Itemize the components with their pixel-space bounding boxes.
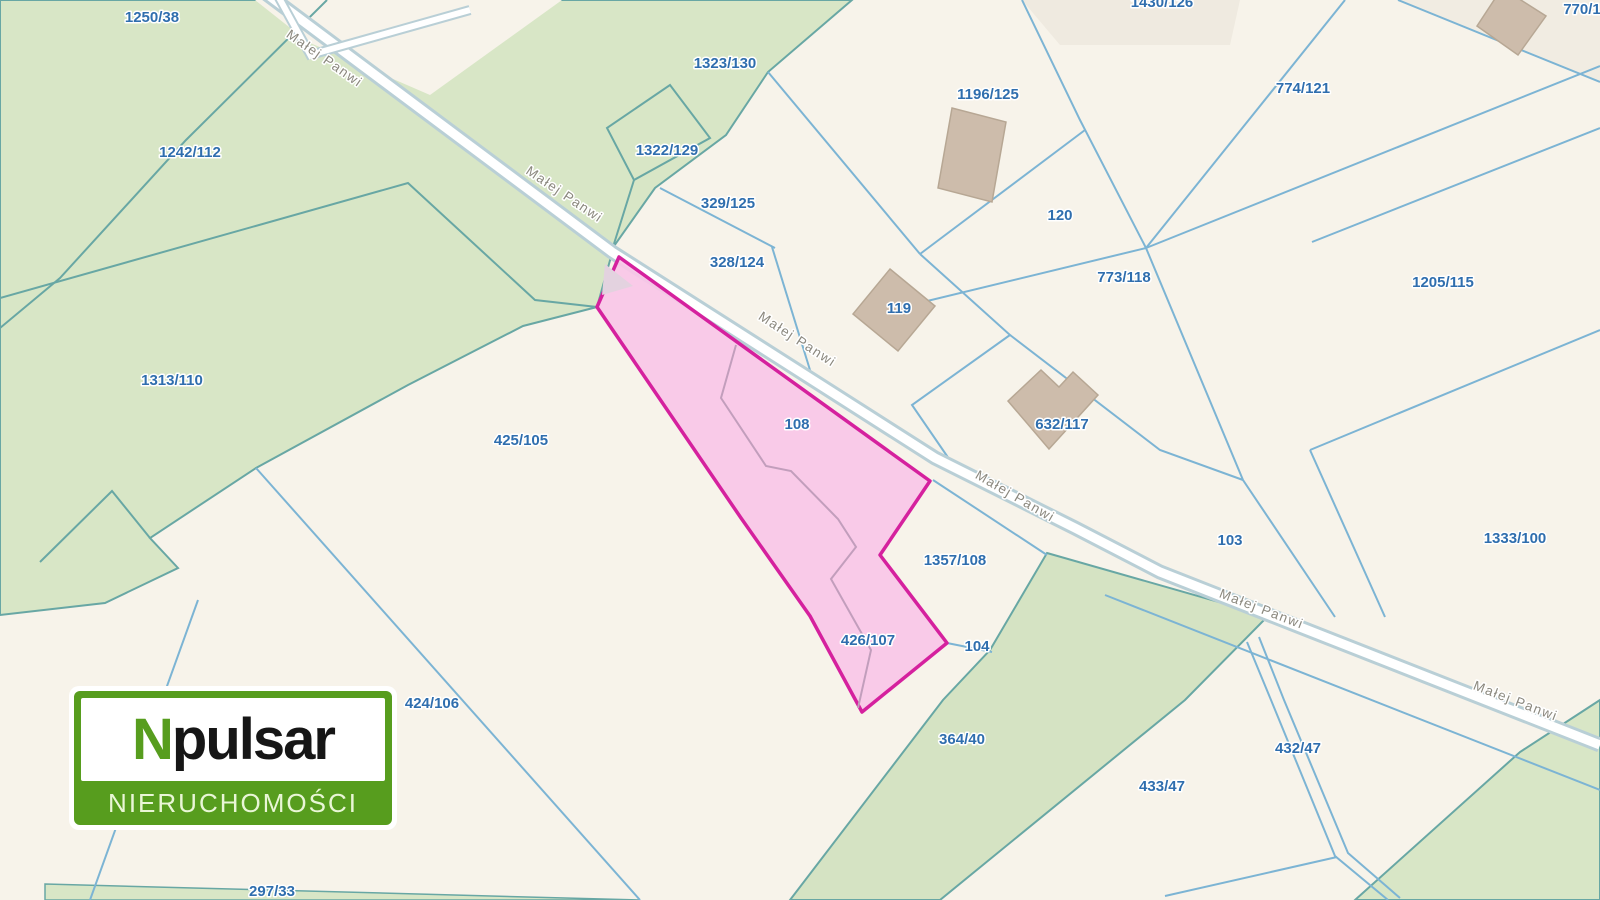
parcel-label: 425/105 <box>494 432 548 449</box>
parcel-label: 1333/100 <box>1484 530 1547 547</box>
parcel-label: 770/1 <box>1563 1 1600 18</box>
parcel-label: 119 <box>887 300 911 317</box>
parcel-label: 1357/108 <box>924 552 987 569</box>
agency-logo-frame: Npulsar NIERUCHOMOŚCI <box>74 691 392 825</box>
parcel-label: 297/33 <box>249 883 295 900</box>
parcel-label: 1242/112 <box>159 144 221 161</box>
parcel-label: 433/47 <box>1139 778 1185 795</box>
parcel-label: 1322/129 <box>636 142 699 159</box>
parcel-label: 1313/110 <box>141 372 203 389</box>
parcel-label: 364/40 <box>939 731 985 748</box>
parcel-label: 424/106 <box>405 695 459 712</box>
parcel-label: 328/124 <box>710 254 765 271</box>
parcel-label: 1205/115 <box>1412 274 1474 291</box>
parcel-label: 120 <box>1047 207 1072 224</box>
agency-logo-brand-rest: pulsar <box>172 711 334 769</box>
parcel-label: 1196/125 <box>957 86 1019 103</box>
agency-logo: Npulsar NIERUCHOMOŚCI <box>69 686 397 830</box>
parcel-label: 108 <box>784 416 809 433</box>
parcel-label: 632/117 <box>1035 416 1088 433</box>
parcel-label: 774/121 <box>1276 80 1330 97</box>
agency-logo-brand-prefix: N <box>132 711 172 769</box>
parcel-label: 329/125 <box>701 195 755 212</box>
parcel-label: 1250/38 <box>125 9 179 26</box>
agency-logo-brand: Npulsar <box>81 698 385 781</box>
parcel-label: 426/107 <box>841 632 895 649</box>
parcel-label: 1323/130 <box>694 55 757 72</box>
parcel-label: 103 <box>1217 532 1242 549</box>
parcel-label: 432/47 <box>1275 740 1321 757</box>
parcel-label: 1430/126 <box>1131 0 1194 11</box>
parcel-label: 104 <box>964 638 990 655</box>
agency-logo-tagline: NIERUCHOMOŚCI <box>81 781 385 825</box>
cadastral-map[interactable]: 1250/38 1242/112 1313/110 1323/130 1322/… <box>0 0 1600 900</box>
parcel-label: 773/118 <box>1097 269 1150 286</box>
